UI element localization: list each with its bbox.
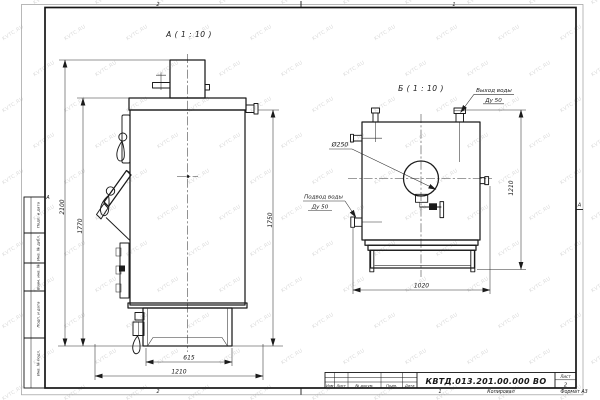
inlet-label-line2: Ду 50 [311,205,329,211]
hopper-lower-edge [106,218,130,241]
upper-door-handle-ring [119,133,127,141]
flue-diameter-label: Ø250 [331,141,349,149]
loading-door-frame [97,204,109,220]
footer-copied: Копировал [487,389,514,395]
dim-1750-label: 1750 [267,212,274,227]
flue-diameter-leader [352,149,436,190]
stamp-label-podp-data-2: Подп. и дата [36,301,41,328]
title-block: Изм Лист № докум. Подп. Дата КВТД.013.20… [325,373,588,396]
drain-handle [440,202,444,218]
dim-2100-label: 2100 [59,199,66,214]
rear-pipe-flange [254,104,258,115]
col-izm: Изм [326,384,334,388]
stamp-label-podp-data-1: Подп. и дата [36,201,41,228]
col-podp: Подп. [386,384,397,388]
zone-label-top-left: 2 [156,2,159,8]
left-upper-stub [354,135,363,141]
outlet-stub [456,114,464,123]
footer-format: Формат А3 [560,389,587,395]
upper-door-handle-loop [117,141,125,161]
stub-centerlines [362,122,460,222]
chimney-boss [205,85,210,91]
stamp-label-inv-podl: Инв. № подл. [36,350,41,376]
inlet-stub [355,218,363,226]
zone-label-top-right: 1 [452,2,455,8]
top-left-stub-flange [372,108,380,113]
top-left-stub [373,113,378,122]
sheet-number: 2 [564,382,567,388]
view-b-annotations: Выход воды Ду 50 Подвод воды Ду 50 Ø250 … [303,88,526,294]
col-doc: № докум. [354,384,373,388]
stamp-column: Подп. и дата Инв. № дубл. Взам. инв. № П… [24,197,45,388]
stamp-column-box [24,197,45,388]
dim-1210-b-label: 1210 [508,180,515,195]
dim-1770-label: 1770 [77,218,84,233]
outlet-label-line2: Ду 50 [484,98,502,104]
drawing-sheet: KVTC.RUKVTC.RUKVTC.RUKVTC.RUKVTC.RUKVTC.… [0,0,600,400]
dim-1210-label: 1210 [171,369,186,376]
view-a-dimensions: 2100 1770 1750 615 1210 [58,60,283,380]
zone-label-bottom-left: 2 [156,389,159,395]
doc-number: КВТД.013.201.00.000 ВО [426,377,547,386]
rear-pipe-stub [246,105,254,113]
lower-door-bolt [119,266,125,272]
loading-door-slab [104,171,131,207]
base-plate-1 [365,240,478,245]
drain-valve [429,203,437,210]
zone-label-bottom-right: 1 [438,389,441,395]
sheet-label: Лист [559,374,571,379]
latch-hook [133,336,140,354]
view-a: А ( 1 : 10 ) [97,30,259,354]
zone-letter-right: А [577,203,582,209]
view-b: Б ( 1 : 10 ) [348,84,492,277]
outlet-label-line1: Выход воды [476,88,512,94]
dim-615-label: 615 [183,355,195,362]
right-stub-flange [485,177,489,185]
view-a-title: А ( 1 : 10 ) [165,30,212,39]
center-mark [187,175,190,178]
col-data: Дата [404,384,415,388]
base-plate-2 [368,245,476,250]
inlet-label-line1: Подвод воды [304,195,343,201]
left-upper-stub-flange [351,134,354,142]
stamp-label-inv-dubl: Инв. № дубл. [36,235,41,261]
stamp-label-vzam-inv: Взам. инв. № [36,264,41,290]
damper-pin [156,73,166,91]
inlet-stub-flange [351,217,355,227]
inlet-leader [345,201,356,218]
stamp-cell-lines [24,233,45,338]
view-b-title: Б ( 1 : 10 ) [398,84,444,93]
dim-1020-label: 1020 [414,283,429,290]
drawing-svg: 2 1 2 1 А А Подп. и дата Инв. № дубл. Вз… [0,0,600,400]
zone-letter-left: А [45,195,50,201]
col-list: Лист [336,384,347,388]
